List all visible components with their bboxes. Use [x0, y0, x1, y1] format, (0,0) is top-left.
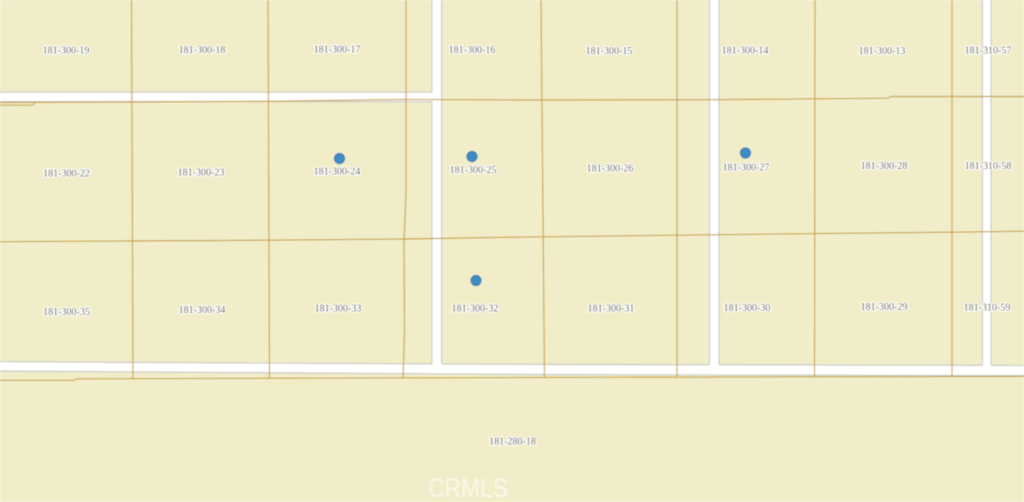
svg-text:181-300-16: 181-300-16	[449, 45, 496, 56]
svg-text:181-280-18: 181-280-18	[489, 437, 536, 448]
svg-text:CRMLS: CRMLS	[428, 473, 508, 502]
svg-text:181-310-59: 181-310-59	[964, 303, 1011, 314]
svg-text:181-300-17: 181-300-17	[314, 45, 361, 56]
svg-text:181-300-19: 181-300-19	[43, 46, 90, 57]
svg-text:181-300-26: 181-300-26	[587, 164, 634, 175]
svg-text:181-300-27: 181-300-27	[723, 163, 770, 174]
svg-text:181-300-32: 181-300-32	[452, 304, 499, 315]
svg-text:181-300-34: 181-300-34	[179, 305, 226, 316]
svg-text:181-300-29: 181-300-29	[861, 302, 908, 313]
svg-text:181-310-57: 181-310-57	[965, 46, 1012, 57]
svg-text:181-310-58: 181-310-58	[965, 161, 1012, 172]
svg-text:181-300-23: 181-300-23	[178, 168, 225, 179]
svg-text:181-300-22: 181-300-22	[43, 169, 90, 180]
svg-text:181-300-31: 181-300-31	[588, 304, 635, 315]
svg-text:181-300-33: 181-300-33	[315, 304, 362, 315]
svg-text:181-300-14: 181-300-14	[722, 46, 769, 57]
svg-text:181-300-25: 181-300-25	[450, 165, 497, 176]
svg-text:181-300-35: 181-300-35	[43, 307, 90, 318]
svg-text:181-300-15: 181-300-15	[586, 46, 633, 57]
svg-text:181-300-24: 181-300-24	[314, 167, 361, 178]
svg-text:181-300-13: 181-300-13	[859, 46, 906, 57]
svg-text:181-300-28: 181-300-28	[861, 161, 908, 172]
svg-text:181-300-18: 181-300-18	[179, 45, 226, 56]
svg-text:181-300-30: 181-300-30	[724, 303, 771, 314]
